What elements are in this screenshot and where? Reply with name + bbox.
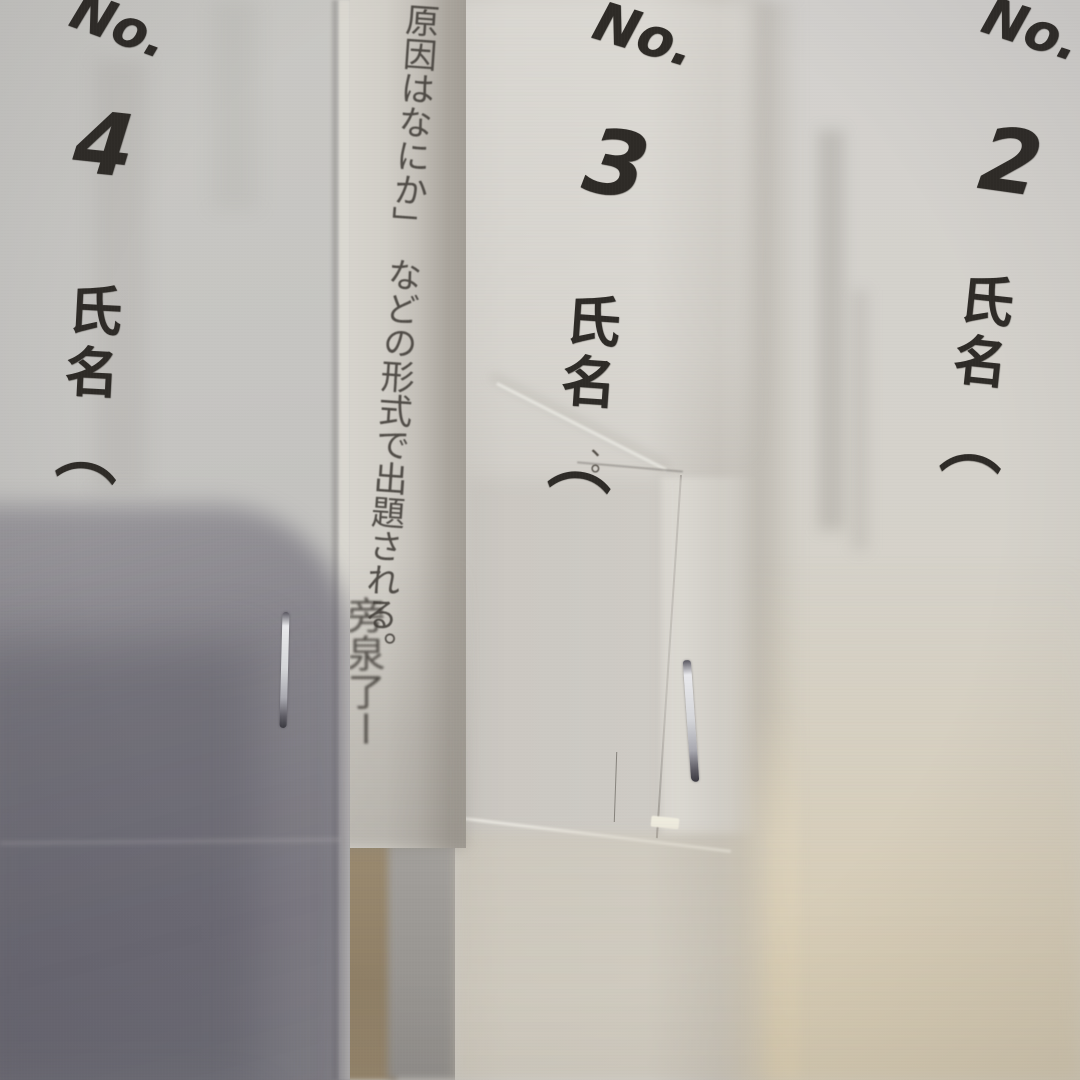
sheet-no2-name-label: 氏名 (946, 270, 1012, 397)
between-sheets-shadow-band (388, 838, 462, 1080)
sheet-no2-number-label: No. (976, 0, 1080, 70)
sheet-no3-underpage (661, 477, 757, 835)
sheet-no3-name-paren: （ (547, 428, 611, 492)
sheet-no2-streak (852, 290, 868, 550)
sheet-no4-name-paren: （ (56, 420, 118, 482)
sheet-no4-name-label: 氏名 (59, 281, 119, 408)
sheet-no4-number-label: No. (64, 0, 175, 67)
photo-of-stapled-answer-sheets: No. 2 氏名 （ 、。 No. 3 氏名 (0, 0, 1080, 1080)
printed-page-strip: 原因はなにか」 などの形式で出題される。 旁泉了ー (336, 0, 466, 848)
answer-sheet-no3: 、。 No. 3 氏名 （ (455, 0, 785, 1080)
sheet-no4-number: 4 (70, 99, 139, 191)
sheet-no2-name-paren: （ (938, 412, 1000, 474)
sheet-no3-name-label: 氏名 (555, 290, 618, 416)
camera-shadow-core (0, 640, 260, 1080)
sheet-no3-lower-warm (455, 832, 755, 1080)
sheet-no2-number: 2 (974, 114, 1047, 210)
answer-sheet-no4: No. 4 氏名 （ (0, 0, 350, 1080)
sheet-no4-streak (212, 0, 258, 210)
sheet-no3-underpage-shade (465, 478, 665, 834)
sheet-no2-streak (818, 130, 844, 530)
